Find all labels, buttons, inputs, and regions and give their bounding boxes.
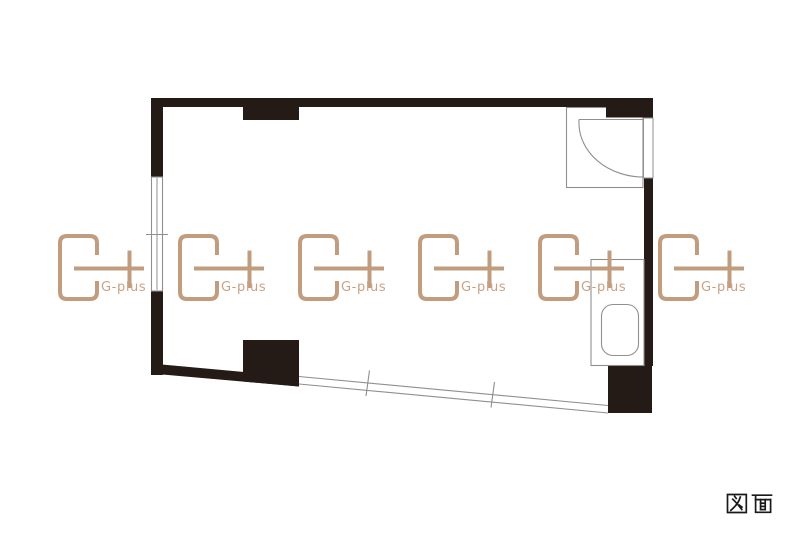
toilet-icon: [602, 305, 639, 356]
pillar-bottom-left: [243, 340, 299, 387]
floor-plan-page: G-plus G-plus G-plus G-plus: [0, 0, 800, 534]
wall-right-upper: [644, 98, 653, 118]
door-arc: [579, 123, 644, 177]
pillar-bottom-right: [608, 365, 652, 413]
bottom-window-outer-line: [299, 377, 608, 406]
door-leaf: [579, 120, 644, 124]
walls: [151, 98, 653, 413]
left-window-icon: [146, 177, 168, 291]
floor-plan-drawing: [0, 0, 800, 534]
wall-right-lower: [644, 178, 653, 366]
caption-kanji-men-icon: [751, 491, 773, 514]
toilet-room: [591, 260, 644, 366]
wall-top: [151, 98, 653, 107]
pillar-top-middle: [243, 107, 299, 120]
entrance-door-icon: [567, 108, 644, 188]
bottom-window-icon: [299, 371, 608, 414]
door-jamb: [644, 118, 654, 178]
caption-kanji-zu-icon: [726, 491, 748, 514]
bottom-window-inner-line: [299, 384, 608, 413]
caption: 図面: [726, 491, 773, 514]
wall-left-upper: [151, 98, 163, 178]
wall-left-lower: [151, 290, 163, 375]
